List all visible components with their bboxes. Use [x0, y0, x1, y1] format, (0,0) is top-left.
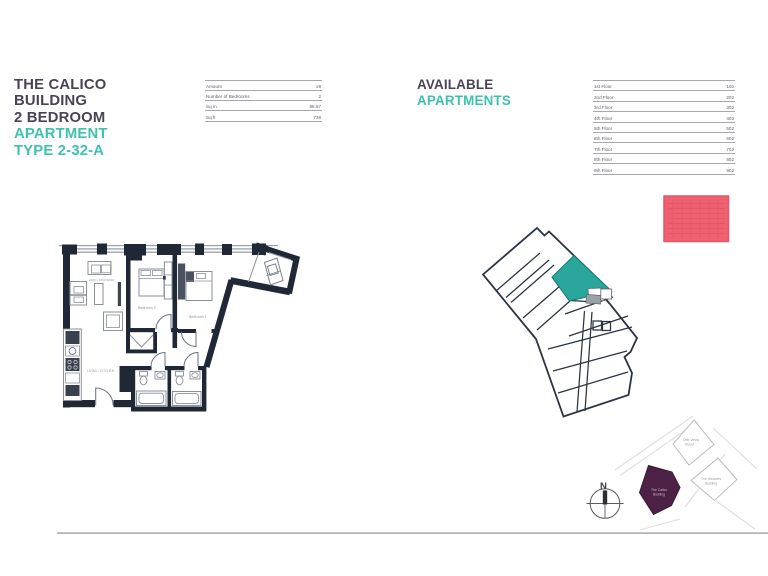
- svg-text:N: N: [600, 481, 607, 492]
- svg-text:Bedroom 2: Bedroom 2: [138, 306, 156, 310]
- svg-text:The Calico: The Calico: [651, 488, 667, 492]
- svg-text:Building: Building: [653, 493, 665, 497]
- svg-text:One Vesta: One Vesta: [683, 438, 699, 442]
- svg-text:Bedroom 1: Bedroom 1: [189, 315, 207, 319]
- svg-text:Street: Street: [685, 443, 694, 447]
- svg-text:Building: Building: [705, 482, 717, 486]
- svg-text:The Weavers: The Weavers: [701, 477, 721, 481]
- svg-text:LIVING / KITCHEN: LIVING / KITCHEN: [87, 369, 115, 373]
- svg-text:2200 x 1500 SOFA: 2200 x 1500 SOFA: [89, 278, 114, 282]
